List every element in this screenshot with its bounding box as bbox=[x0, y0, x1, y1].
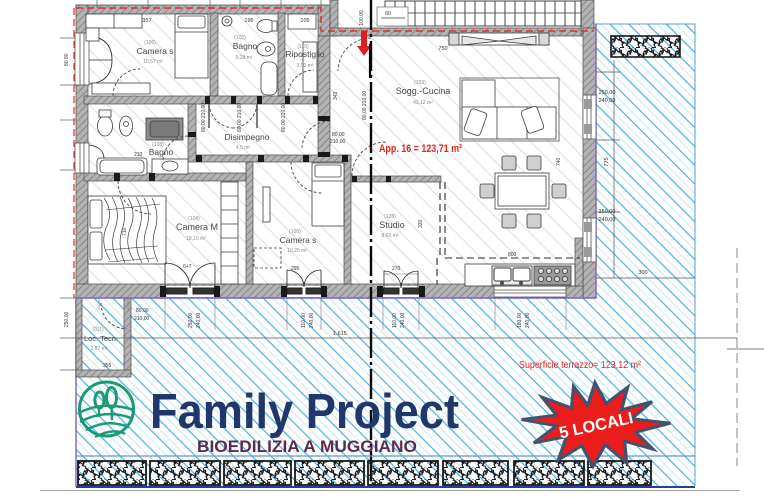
svg-text:(128): (128) bbox=[384, 214, 396, 220]
svg-text:App. 16 = 123,71 m²: App. 16 = 123,71 m² bbox=[379, 143, 462, 155]
svg-text:80,00 210,00: 80,00 210,00 bbox=[237, 103, 243, 132]
svg-text:110,00: 110,00 bbox=[392, 313, 398, 328]
svg-text:210: 210 bbox=[134, 152, 143, 158]
svg-text:357: 357 bbox=[142, 18, 151, 24]
svg-text:Superficie terrazzo= 123,12 m²: Superficie terrazzo= 123,12 m² bbox=[519, 360, 642, 371]
svg-text:710: 710 bbox=[122, 227, 128, 236]
svg-text:80,00: 80,00 bbox=[332, 132, 345, 138]
svg-text:320: 320 bbox=[418, 219, 424, 228]
svg-text:8,62 m²: 8,62 m² bbox=[382, 233, 399, 239]
svg-text:210,00: 210,00 bbox=[134, 316, 150, 322]
svg-text:80,00 210,00: 80,00 210,00 bbox=[201, 103, 207, 132]
svg-text:250,00: 250,00 bbox=[599, 209, 616, 215]
svg-text:10,26 m²: 10,26 m² bbox=[287, 248, 307, 254]
svg-text:80 80: 80 80 bbox=[64, 53, 70, 66]
svg-text:4,5 m²: 4,5 m² bbox=[236, 145, 251, 151]
svg-text:100,00: 100,00 bbox=[359, 10, 365, 26]
svg-text:Family Project: Family Project bbox=[150, 385, 459, 439]
svg-text:105: 105 bbox=[300, 18, 309, 24]
svg-text:240,00: 240,00 bbox=[400, 312, 406, 328]
svg-text:250,00: 250,00 bbox=[599, 90, 616, 96]
svg-text:180,00: 180,00 bbox=[517, 312, 523, 328]
svg-text:343: 343 bbox=[333, 91, 339, 100]
svg-text:(110): (110) bbox=[297, 44, 309, 50]
svg-text:240,00: 240,00 bbox=[599, 98, 616, 104]
svg-text:240,00: 240,00 bbox=[599, 217, 616, 223]
svg-text:BIOEDILIZIA A MUGGIANO: BIOEDILIZIA A MUGGIANO bbox=[197, 437, 417, 456]
svg-text:Sogg.-Cucina: Sogg.-Cucina bbox=[396, 86, 451, 96]
svg-text:3,00 m²: 3,00 m² bbox=[297, 63, 314, 69]
svg-text:775: 775 bbox=[604, 157, 610, 166]
svg-text:300: 300 bbox=[638, 270, 647, 276]
svg-text:295: 295 bbox=[291, 266, 300, 272]
svg-text:6+7: 6+7 bbox=[183, 264, 192, 270]
svg-text:240,00: 240,00 bbox=[309, 312, 315, 328]
svg-text:80,00: 80,00 bbox=[136, 308, 149, 314]
svg-text:210,00: 210,00 bbox=[330, 139, 346, 145]
svg-text:Camera s: Camera s bbox=[137, 46, 174, 56]
svg-text:Bagno: Bagno bbox=[233, 41, 258, 51]
svg-text:Loc. Tecn.: Loc. Tecn. bbox=[84, 334, 118, 343]
svg-text:750: 750 bbox=[438, 46, 447, 52]
svg-text:(103): (103) bbox=[414, 80, 426, 86]
svg-text:60: 60 bbox=[385, 11, 391, 17]
svg-text:800: 800 bbox=[508, 252, 517, 258]
svg-text:Camera s: Camera s bbox=[280, 235, 317, 245]
svg-text:Ripostiglio: Ripostiglio bbox=[285, 49, 324, 59]
svg-text:270: 270 bbox=[392, 266, 401, 272]
svg-text:9,28 m²: 9,28 m² bbox=[236, 55, 253, 61]
svg-text:(102): (102) bbox=[234, 35, 246, 41]
svg-text:80,00 210,00: 80,00 210,00 bbox=[362, 91, 368, 120]
svg-text:Disimpegno: Disimpegno bbox=[225, 132, 270, 142]
svg-text:(108): (108) bbox=[152, 142, 164, 148]
svg-text:10,57 m²: 10,57 m² bbox=[143, 59, 163, 65]
svg-text:(106): (106) bbox=[144, 40, 156, 46]
svg-text:2,87 m²: 2,87 m² bbox=[91, 346, 108, 352]
svg-text:18,10 m²: 18,10 m² bbox=[186, 236, 206, 242]
svg-text:(105): (105) bbox=[289, 229, 301, 235]
svg-text:240,00: 240,00 bbox=[525, 312, 531, 328]
svg-text:1.615: 1.615 bbox=[333, 331, 347, 337]
svg-text:195: 195 bbox=[244, 18, 253, 24]
svg-text:355: 355 bbox=[103, 363, 112, 369]
svg-text:Camera M: Camera M bbox=[176, 222, 218, 232]
svg-text:110,00: 110,00 bbox=[301, 313, 307, 328]
svg-text:(104): (104) bbox=[188, 216, 200, 222]
svg-text:240,00: 240,00 bbox=[196, 312, 202, 328]
svg-text:Studio: Studio bbox=[379, 220, 405, 230]
svg-text:250,00: 250,00 bbox=[188, 312, 194, 328]
svg-text:740: 740 bbox=[556, 157, 562, 166]
svg-text:43,12 m²: 43,12 m² bbox=[413, 100, 433, 106]
svg-text:Bagno: Bagno bbox=[149, 147, 174, 157]
svg-text:250,00: 250,00 bbox=[64, 311, 70, 327]
svg-text:80,00 210,00: 80,00 210,00 bbox=[281, 103, 287, 132]
svg-text:(011): (011) bbox=[92, 327, 104, 333]
